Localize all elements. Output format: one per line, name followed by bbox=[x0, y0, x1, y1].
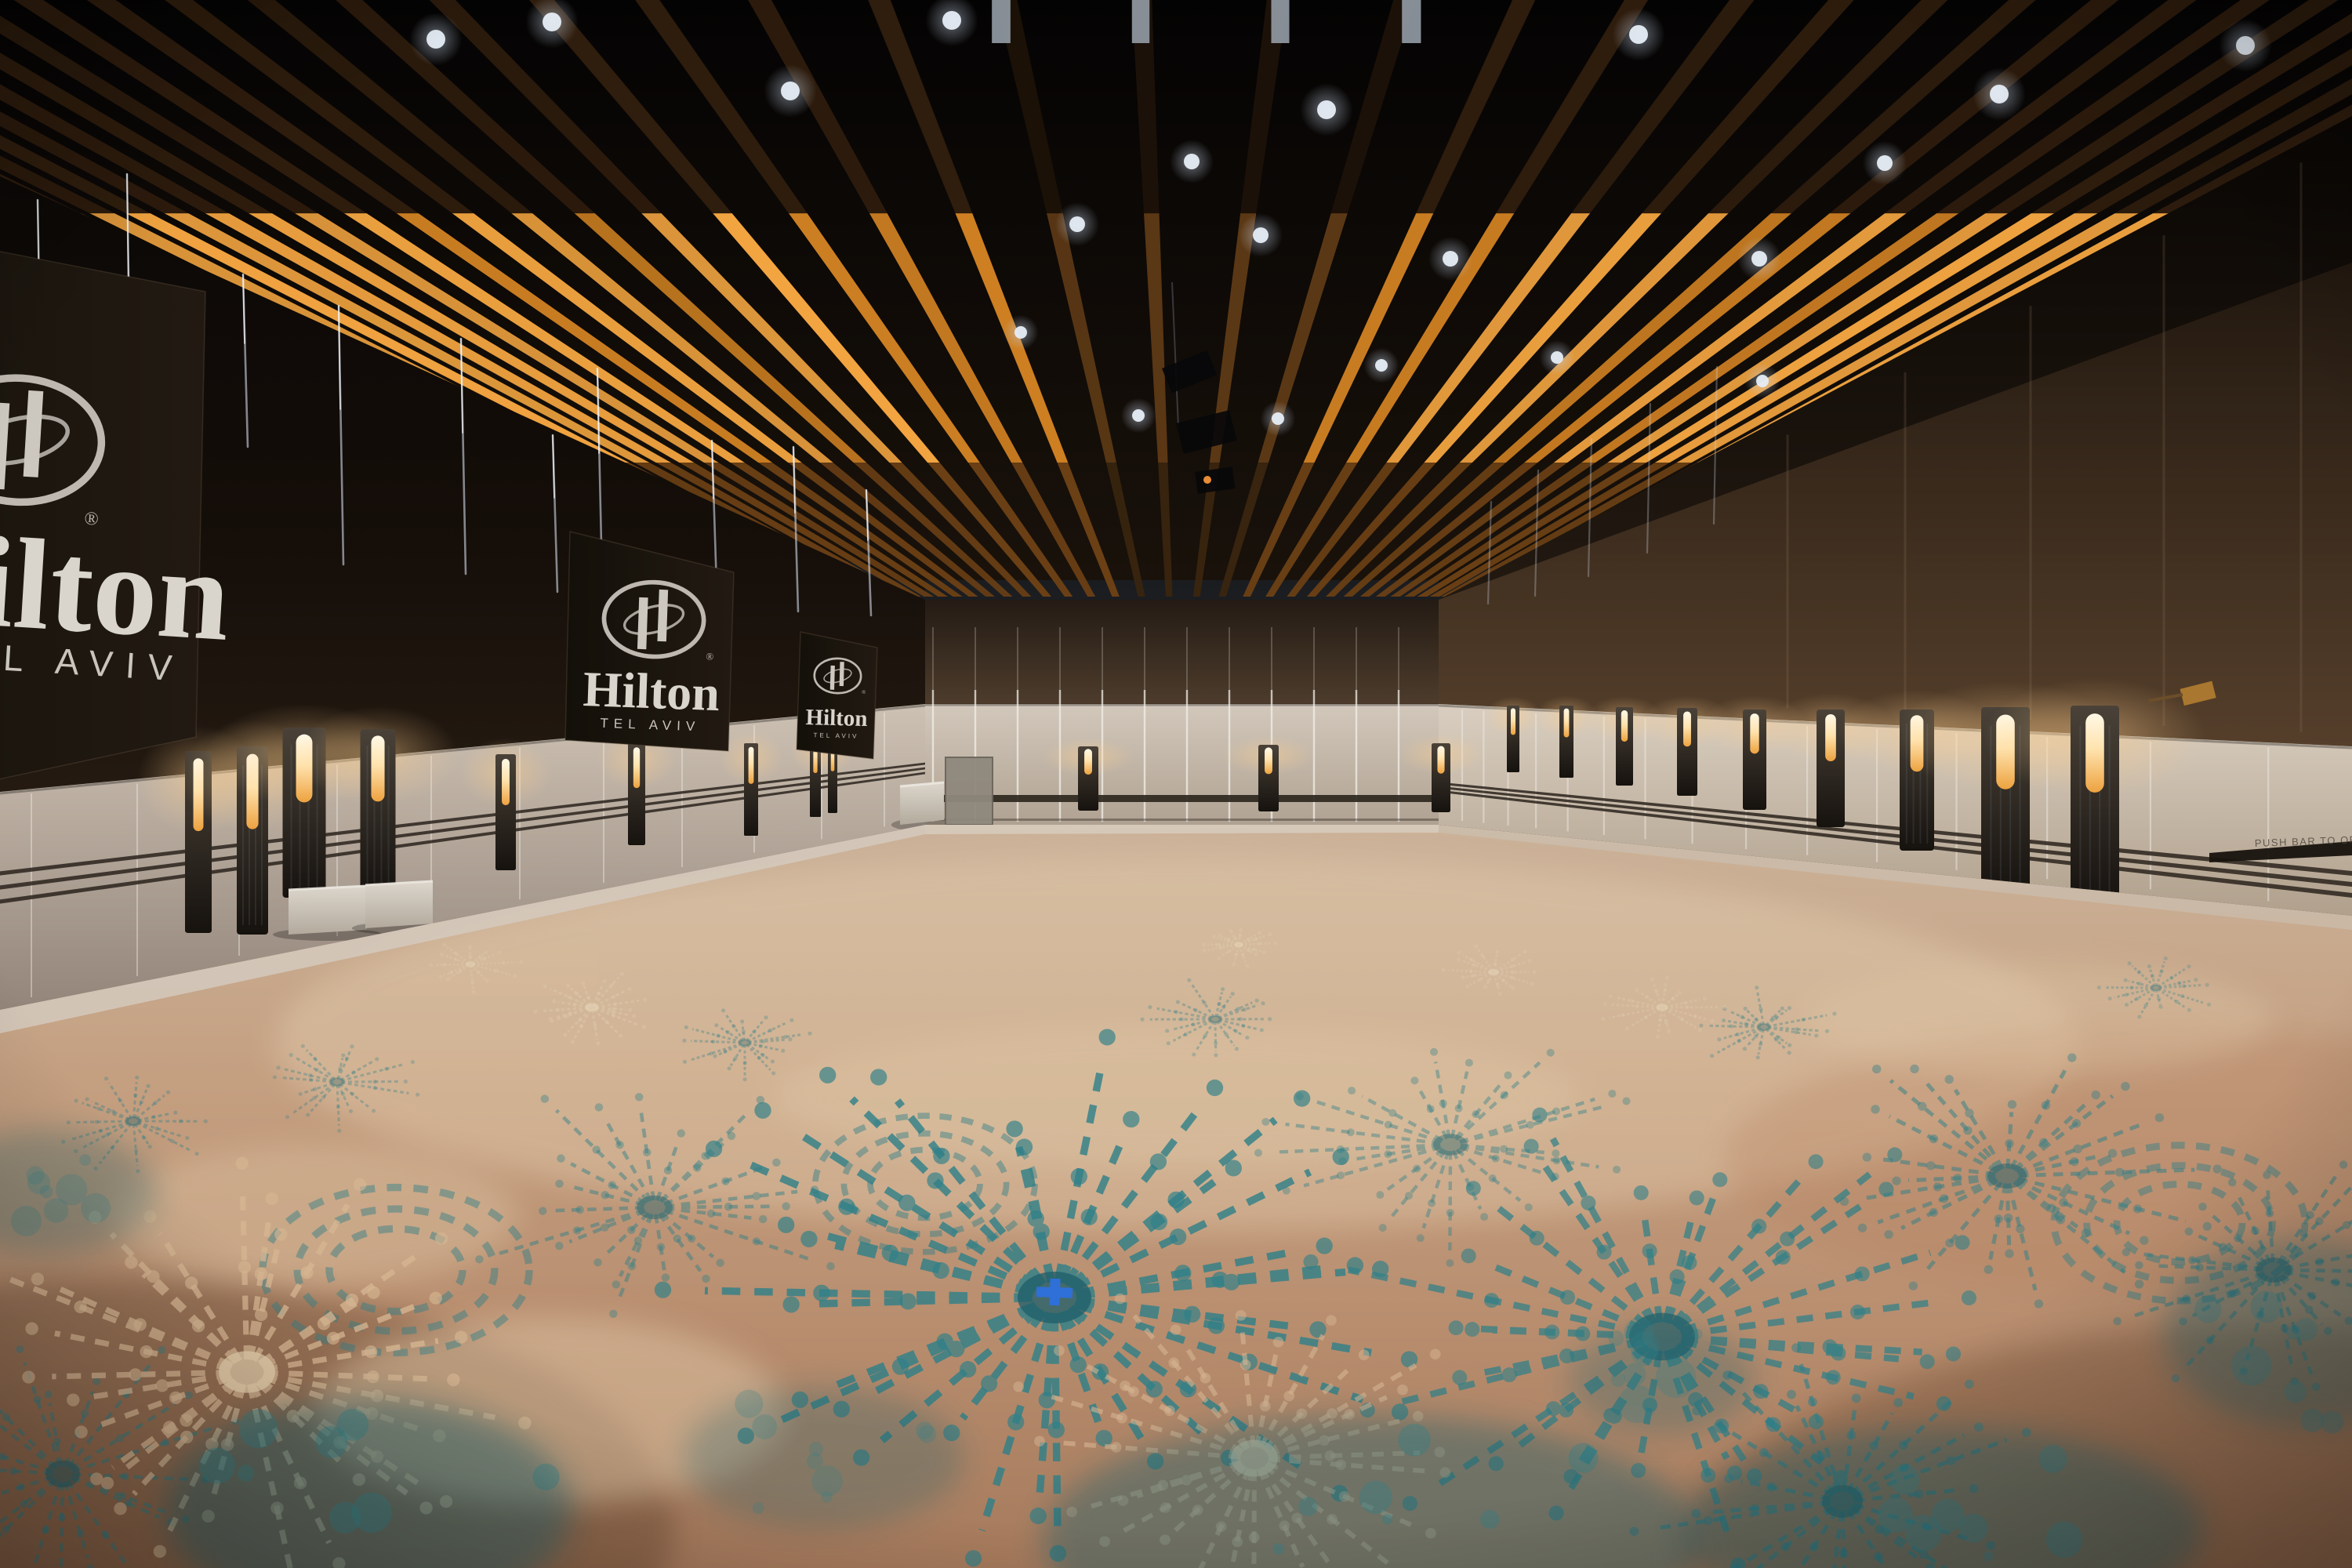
ballroom-photo: ® Hilton TEL AVIV ® Hilton TEL AVIV ® Hi… bbox=[0, 0, 2352, 1568]
room-svg: ® Hilton TEL AVIV ® Hilton TEL AVIV ® Hi… bbox=[0, 0, 2352, 1568]
vignette bbox=[0, 0, 2352, 1568]
